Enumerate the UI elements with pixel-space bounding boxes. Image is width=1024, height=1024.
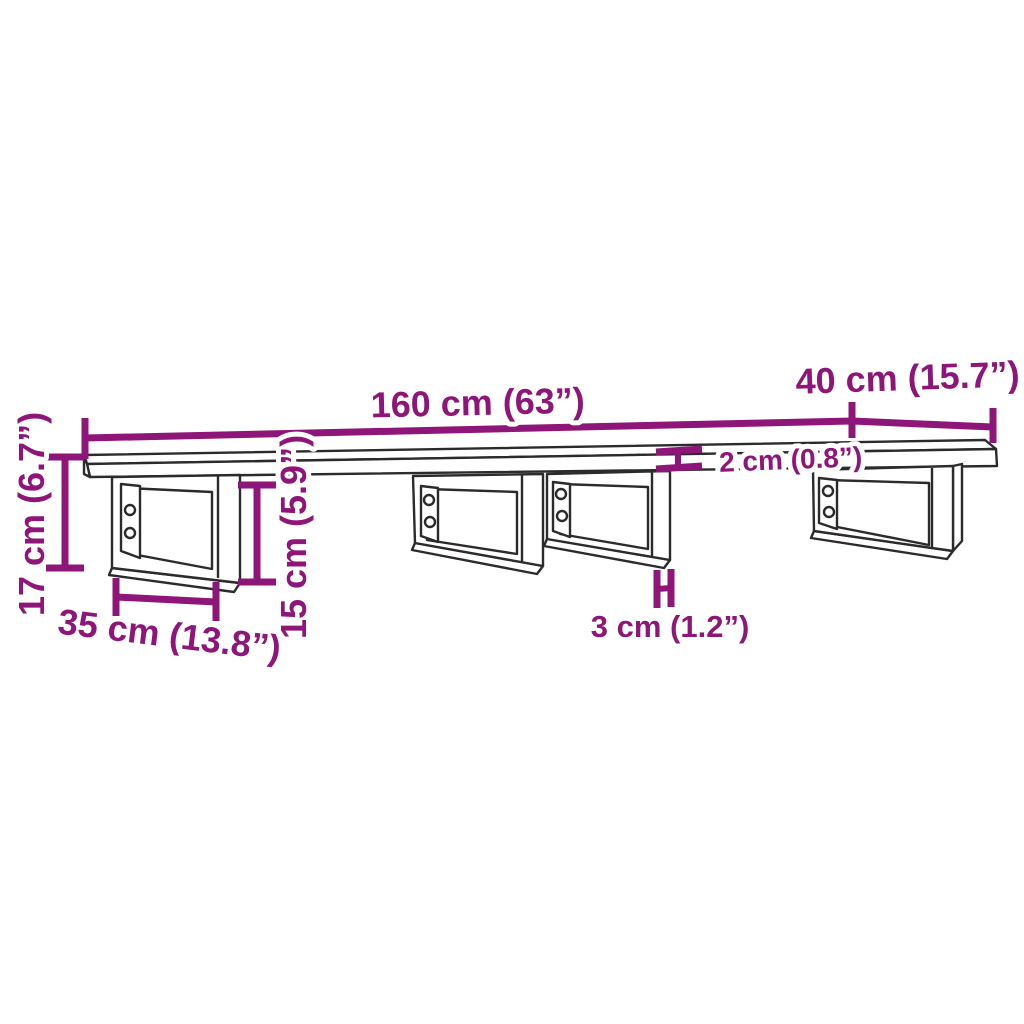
label-length: 160 cm (63”) [370,380,585,426]
bracket-3 [544,471,670,568]
label-bracket-height: 15 cm (5.9”) [273,435,314,639]
dim-depth-line [852,421,993,427]
screw-hole [557,511,567,521]
screw-hole [824,507,834,517]
screw-hole [424,495,434,505]
screw-hole [425,517,435,527]
screw-hole [556,489,566,499]
screw-hole [125,505,135,515]
dim-bar-width-line [657,588,671,589]
label-bar-width: 3 cm (1.2”) [591,609,750,644]
dim-length-line [85,421,852,438]
label-overall-height: 17 cm (6.7”) [11,412,52,616]
bracket-1-wall-plate [121,484,140,558]
screw-hole [125,528,135,538]
label-bracket-depth: 35 cm (13.8”) [56,601,283,669]
label-depth: 40 cm (15.7”) [795,353,1020,402]
bracket-2 [412,474,543,574]
diagram-canvas: 160 cm (63”) 40 cm (15.7”) 2 cm (0.8”) 1… [0,0,1024,1024]
bracket-4-leg-side-face [953,464,962,551]
bracket-1 [109,475,240,592]
screw-hole [823,486,833,496]
label-board-thickness: 2 cm (0.8”) [718,441,862,478]
dimension-diagram: 160 cm (63”) 40 cm (15.7”) 2 cm (0.8”) 1… [0,0,1024,1024]
bracket-4 [811,464,962,559]
dim-bracket-depth-line [116,597,216,602]
